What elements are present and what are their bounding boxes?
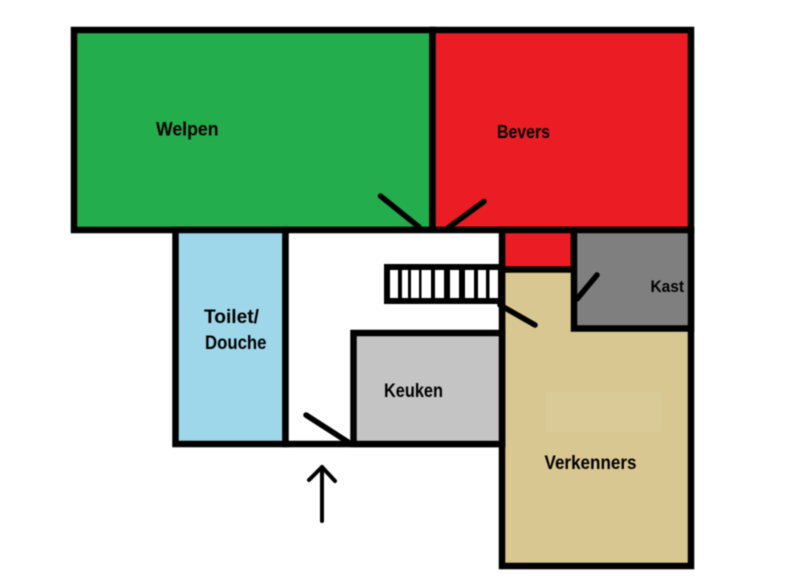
svg-text:Toilet/: Toilet/ [204,307,260,328]
svg-text:Keuken: Keuken [384,381,443,402]
svg-text:Verkenners: Verkenners [545,452,637,474]
svg-text:Douche: Douche [205,333,267,354]
svg-text:Welpen: Welpen [156,119,219,141]
svg-text:Bevers: Bevers [497,121,550,142]
svg-text:Kast: Kast [651,277,685,296]
